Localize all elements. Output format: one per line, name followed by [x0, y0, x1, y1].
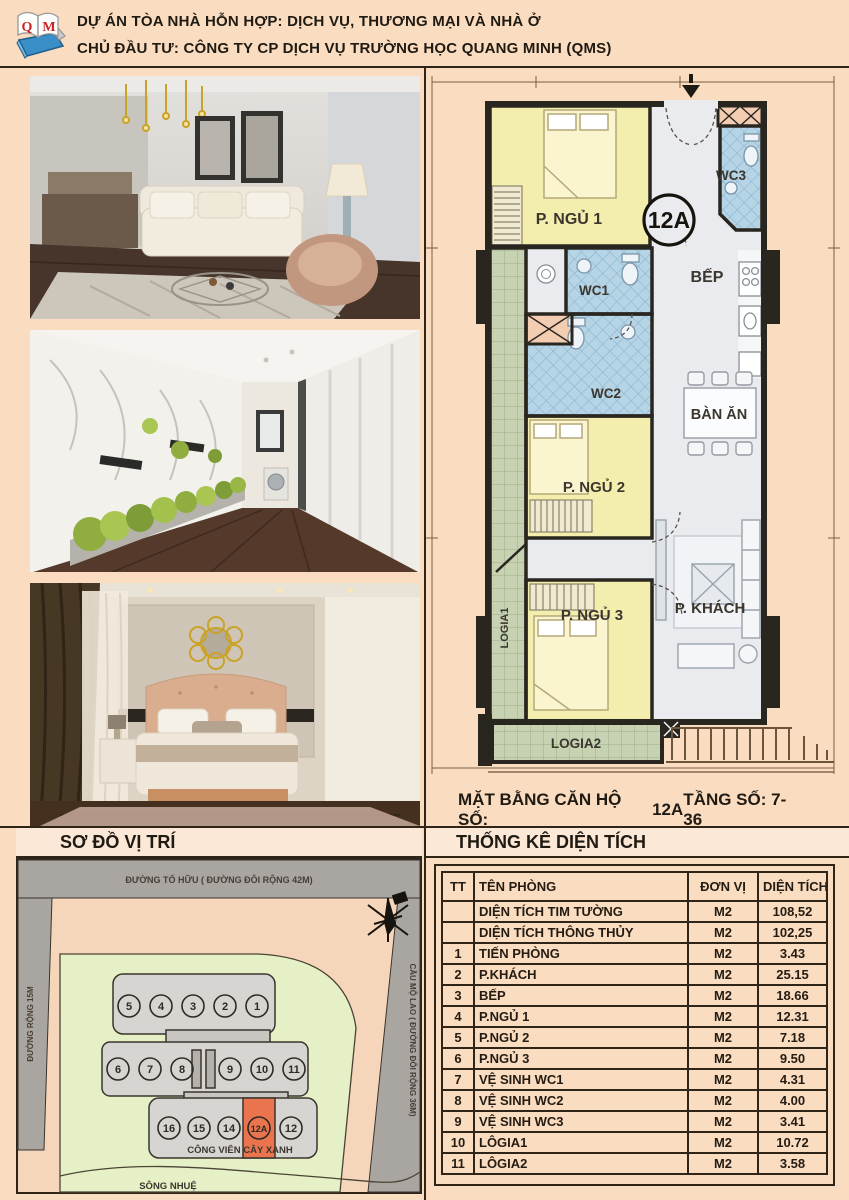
area-table-panel: THỐNG KÊ DIỆN TÍCH TT TÊN PHÒNG ĐƠN VỊ D…	[424, 828, 849, 1200]
table-row: 11LÔGIA2M23.58	[442, 1153, 827, 1174]
table-row: 3BẾPM218.66	[442, 985, 827, 1006]
cell-tt: 8	[442, 1090, 474, 1111]
road-left-label: ĐƯỜNG RỘNG 15M	[26, 986, 35, 1062]
room-logia1	[490, 248, 526, 722]
header: Q M DỰ ÁN TÒA NHÀ HỖN HỢP: DỊCH VỤ, THƯƠ…	[0, 0, 849, 66]
table-row: DIỆN TÍCH THÔNG THỦYM2102,25	[442, 922, 827, 943]
area-table: TT TÊN PHÒNG ĐƠN VỊ DIỆN TÍCH DIỆN TÍCH …	[441, 871, 828, 1175]
table-row: 1TIẾN PHÒNGM23.43	[442, 943, 827, 964]
room-label-wc2: WC2	[591, 386, 621, 401]
table-row: 6P.NGỦ 3M29.50	[442, 1048, 827, 1069]
table-row: 2P.KHÁCHM225.15	[442, 964, 827, 985]
cell-area: 4.00	[758, 1090, 827, 1111]
cell-area: 3.41	[758, 1111, 827, 1132]
brochure-page: Q M DỰ ÁN TÒA NHÀ HỖN HỢP: DỊCH VỤ, THƯƠ…	[0, 0, 849, 1200]
room-label-bep: BẾP	[691, 267, 724, 286]
table-row: DIỆN TÍCH TIM TƯỜNGM2108,52	[442, 901, 827, 922]
unit-number: 3	[190, 1001, 196, 1013]
cell-tt: 9	[442, 1111, 474, 1132]
room-label-khach: P. KHÁCH	[675, 600, 746, 617]
col-header-area: DIỆN TÍCH	[758, 872, 827, 901]
cell-area: 12.31	[758, 1006, 827, 1027]
area-table-body: DIỆN TÍCH TIM TƯỜNGM2108,52DIỆN TÍCH THÔ…	[442, 901, 827, 1174]
table-row: 8VỆ SINH WC2M24.00	[442, 1090, 827, 1111]
cell-name: BẾP	[474, 985, 688, 1006]
room-label-logia1: LOGIA1	[499, 608, 511, 649]
cell-name: LÔGIA1	[474, 1132, 688, 1153]
table-row: 4P.NGỦ 1M212.31	[442, 1006, 827, 1027]
cell-area: 102,25	[758, 922, 827, 943]
site-map-title-bar: SƠ ĐỒ VỊ TRÍ	[16, 828, 422, 858]
cell-tt	[442, 922, 474, 943]
cell-area: 3.43	[758, 943, 827, 964]
cell-name: P.NGỦ 3	[474, 1048, 688, 1069]
table-header-row: TT TÊN PHÒNG ĐƠN VỊ DIỆN TÍCH	[442, 872, 827, 901]
site-map-title: SƠ ĐỒ VỊ TRÍ	[60, 832, 175, 853]
unit-number: 1	[254, 1001, 260, 1013]
cell-name: TIẾN PHÒNG	[474, 943, 688, 964]
cell-tt: 6	[442, 1048, 474, 1069]
cell-tt: 2	[442, 964, 474, 985]
plan-caption-prefix: MẶT BẰNG CĂN HỘ SỐ:	[458, 790, 643, 830]
bed-icon	[136, 674, 298, 807]
cell-area: 10.72	[758, 1132, 827, 1153]
floor-plan-panel: 12A P. NGỦ 1 WC1 WC2 WC3 BẾP BÀN ĂN P. N…	[424, 68, 849, 826]
cell-tt: 7	[442, 1069, 474, 1090]
room-label-ngu1: P. NGỦ 1	[536, 209, 603, 228]
room-label-logia2: LOGIA2	[551, 736, 601, 751]
unit-number: 8	[179, 1064, 185, 1076]
cell-unit: M2	[688, 1132, 758, 1153]
project-title: DỰ ÁN TÒA NHÀ HỖN HỢP: DỊCH VỤ, THƯƠNG M…	[77, 13, 541, 30]
stove-icon	[739, 262, 761, 296]
sink-icon	[739, 306, 761, 336]
plan-caption: MẶT BẰNG CĂN HỘ SỐ: 12A TẦNG SỐ: 7-36	[426, 794, 849, 826]
cell-name: P.NGỦ 1	[474, 1006, 688, 1027]
unit-number: 11	[288, 1064, 300, 1076]
entry-arrow-icon	[682, 74, 700, 98]
room-label-ngu2: P. NGỦ 2	[563, 478, 625, 496]
sofa-icon	[140, 186, 304, 256]
cell-unit: M2	[688, 1048, 758, 1069]
col-header-tt: TT	[442, 872, 474, 901]
cell-unit: M2	[688, 1027, 758, 1048]
cell-tt: 4	[442, 1006, 474, 1027]
unit-number-12a: 12A	[251, 1124, 268, 1134]
room-label-wc1: WC1	[579, 283, 609, 298]
cell-area: 25.15	[758, 964, 827, 985]
table-row: 10LÔGIA1M210.72	[442, 1132, 827, 1153]
site-map-panel: SƠ ĐỒ VỊ TRÍ	[0, 828, 424, 1200]
cell-name: DIỆN TÍCH TIM TƯỜNG	[474, 901, 688, 922]
wardrobe-ngu1-icon	[492, 186, 522, 246]
logo-letter-m: M	[42, 20, 55, 35]
wardrobe-ngu2-icon	[530, 500, 592, 532]
cell-area: 7.18	[758, 1027, 827, 1048]
area-table-frame: TT TÊN PHÒNG ĐƠN VỊ DIỆN TÍCH DIỆN TÍCH …	[434, 864, 835, 1186]
cell-name: P.NGỦ 2	[474, 1027, 688, 1048]
washing-machine-icon	[537, 265, 555, 283]
bed-ngu3-icon	[534, 616, 608, 710]
table-row: 5P.NGỦ 2M27.18	[442, 1027, 827, 1048]
top-section: 12A P. NGỦ 1 WC1 WC2 WC3 BẾP BÀN ĂN P. N…	[0, 66, 849, 826]
park-label: CÔNG VIÊN CÂY XANH	[187, 1144, 293, 1156]
interior-photos	[0, 68, 424, 826]
floor-plan: 12A P. NGỦ 1 WC1 WC2 WC3 BẾP BÀN ĂN P. N…	[426, 68, 849, 794]
logo-letter-q: Q	[22, 20, 33, 35]
cell-name: P.KHÁCH	[474, 964, 688, 985]
col-header-name: TÊN PHÒNG	[474, 872, 688, 901]
table-row: 7VỆ SINH WC1M24.31	[442, 1069, 827, 1090]
cell-unit: M2	[688, 901, 758, 922]
unit-number: 14	[223, 1123, 236, 1135]
curtains-icon	[30, 583, 128, 826]
cell-unit: M2	[688, 985, 758, 1006]
cell-unit: M2	[688, 1069, 758, 1090]
cell-unit: M2	[688, 964, 758, 985]
cell-area: 18.66	[758, 985, 827, 1006]
unit-number: 4	[158, 1001, 165, 1013]
cell-unit: M2	[688, 922, 758, 943]
river-label: SÔNG NHUỆ	[139, 1180, 197, 1192]
cell-name: DIỆN TÍCH THÔNG THỦY	[474, 922, 688, 943]
unit-number: 2	[222, 1001, 228, 1013]
nightstand-icon	[100, 739, 136, 783]
road-right-label: CẦU MỘ LAO ( ĐƯỜNG ĐÔI RỘNG 36M)	[408, 963, 418, 1116]
photo-bedroom	[30, 583, 420, 826]
unit-number: 9	[227, 1064, 233, 1076]
cell-tt: 11	[442, 1153, 474, 1174]
cell-unit: M2	[688, 1153, 758, 1174]
room-label-ban-an: BÀN ĂN	[691, 406, 747, 423]
cell-area: 108,52	[758, 901, 827, 922]
entry-gap	[664, 100, 718, 109]
bottom-section: SƠ ĐỒ VỊ TRÍ	[0, 826, 849, 1200]
unit-number: 6	[115, 1064, 121, 1076]
photo-living-room	[30, 76, 420, 319]
plan-caption-unit: 12A	[652, 800, 683, 820]
unit-number: 15	[193, 1123, 205, 1135]
plan-caption-floor: TẦNG SỐ: 7-36	[683, 790, 797, 830]
table-row: 9VỆ SINH WC3M23.41	[442, 1111, 827, 1132]
road-top-label: ĐƯỜNG TỐ HỮU ( ĐƯỜNG ĐÔI RỘNG 42M)	[125, 874, 312, 885]
cell-tt: 3	[442, 985, 474, 1006]
cell-tt: 1	[442, 943, 474, 964]
cell-name: VỆ SINH WC2	[474, 1090, 688, 1111]
cell-name: LÔGIA2	[474, 1153, 688, 1174]
photo-hallway	[30, 330, 420, 573]
unit-badge-label: 12A	[648, 207, 690, 233]
area-table-title-bar: THỐNG KÊ DIỆN TÍCH	[426, 828, 849, 858]
cell-unit: M2	[688, 1006, 758, 1027]
cell-area: 3.58	[758, 1153, 827, 1174]
cell-name: VỆ SINH WC1	[474, 1069, 688, 1090]
cell-area: 4.31	[758, 1069, 827, 1090]
shaft-top	[718, 106, 762, 126]
cell-unit: M2	[688, 1111, 758, 1132]
cell-unit: M2	[688, 943, 758, 964]
cell-name: VỆ SINH WC3	[474, 1111, 688, 1132]
unit-number: 16	[163, 1123, 175, 1135]
unit-badge: 12A	[644, 195, 694, 245]
site-map: 5 4 3 2 1 6 7 8 9 10 11 16 15 14 12A 12	[16, 858, 422, 1200]
cell-tt: 10	[442, 1132, 474, 1153]
cell-tt: 5	[442, 1027, 474, 1048]
unit-number: 7	[147, 1064, 153, 1076]
bed-ngu1-icon	[544, 110, 616, 198]
area-table-title: THỐNG KÊ DIỆN TÍCH	[456, 832, 646, 853]
developer-title: CHỦ ĐẦU TƯ: CÔNG TY CP DỊCH VỤ TRƯỜNG HỌ…	[77, 40, 612, 57]
room-label-wc3: WC3	[716, 168, 746, 183]
cell-unit: M2	[688, 1090, 758, 1111]
room-label-ngu3: P. NGỦ 3	[561, 606, 623, 624]
unit-number: 12	[285, 1123, 297, 1135]
unit-number: 5	[126, 1001, 132, 1013]
qms-logo-icon: Q M	[13, 6, 67, 62]
cell-area: 9.50	[758, 1048, 827, 1069]
unit-number: 10	[256, 1064, 268, 1076]
col-header-unit: ĐƠN VỊ	[688, 872, 758, 901]
cell-tt	[442, 901, 474, 922]
